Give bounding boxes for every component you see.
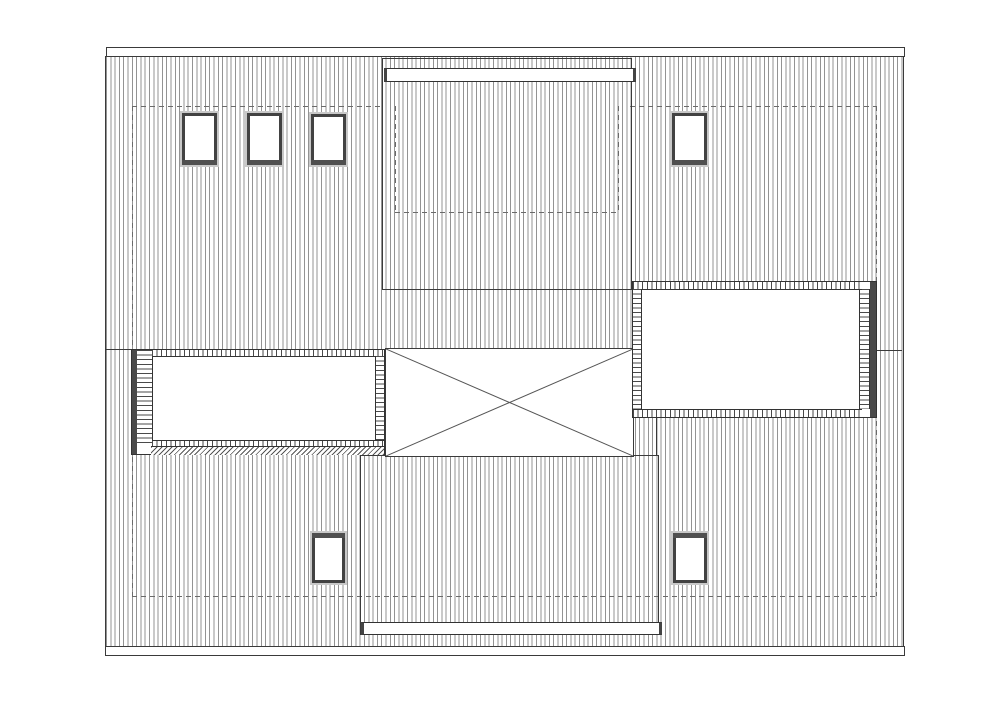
skylight-1 (182, 113, 217, 165)
skylight-2 (247, 113, 282, 165)
skylight-5 (312, 533, 345, 583)
roof-plan-drawing (0, 0, 1000, 704)
skylight-3 (311, 114, 346, 165)
skylight-6 (673, 533, 707, 583)
skylight-layer (0, 0, 1000, 704)
skylight-4 (672, 113, 707, 165)
